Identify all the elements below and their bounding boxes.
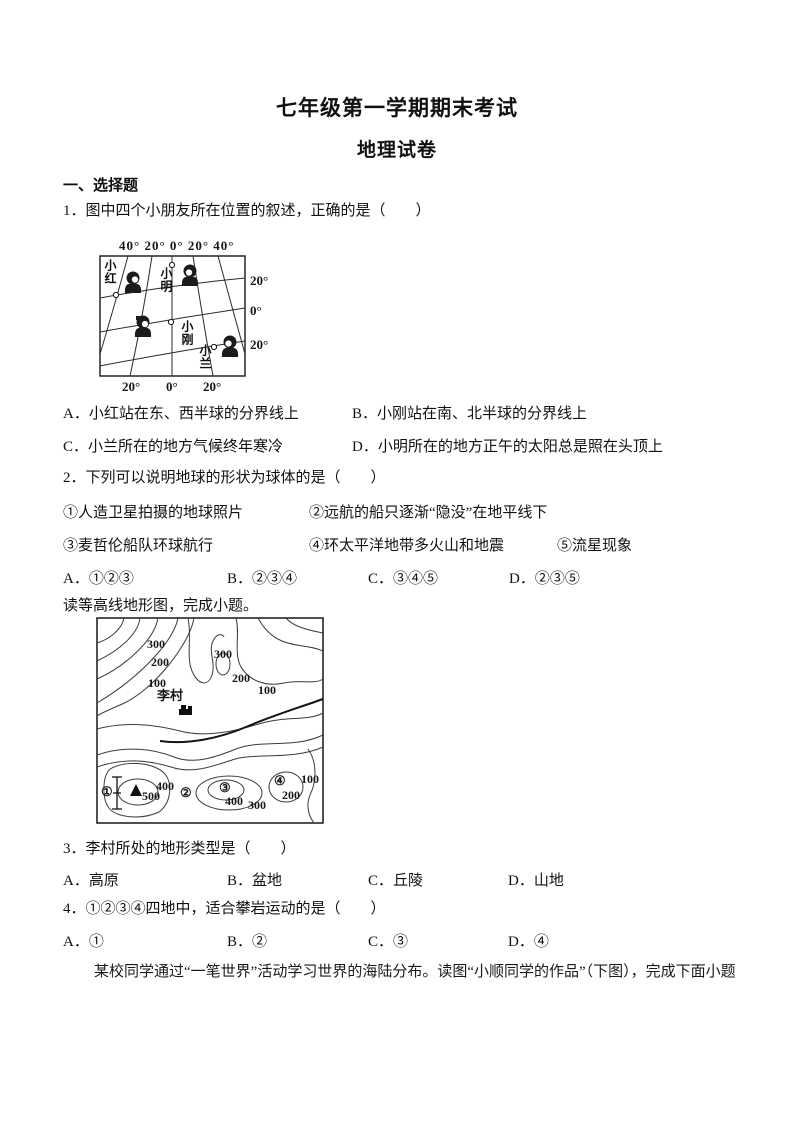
fig1-right-label-20n: 20° [250,273,268,289]
elevation-400-left-label: 400 [156,779,174,794]
lat-long-map-figure: 40° 20° 0° 20° 40° 20° 0° 20° 20° 0° 20°… [95,236,275,394]
contour-label-300-left: 300 [147,637,165,652]
fig1-bottom-label-20e: 20° [203,379,221,395]
site-1-label: ① [101,784,113,800]
child-figure-xiaohong [125,272,141,294]
section-heading: 一、选择题 [63,176,138,196]
question-4-option-c: C．③ [368,930,408,951]
question-3-option-b: B．盆地 [227,869,282,890]
question-1-option-b: B．小刚站在南、北半球的分界线上 [352,402,587,423]
fig1-name-xiaohong: 小红 [102,259,119,285]
site-4-label: ④ [274,773,286,789]
next-section-lead-in: 某校同学通过“一笔世界”活动学习世界的海陆分布。读图“小顺同学的作品”（下图），… [63,956,739,989]
lat-long-map-svg [95,236,275,394]
question-2-stem: 2．下列可以说明地球的形状为球体的是（ ） [63,468,386,488]
contour-label-100-right: 100 [258,683,276,698]
contour-map-lead-in: 读等高线地形图，完成小题。 [63,596,258,616]
child-figure-xiaolan [222,336,238,358]
question-2-option-b: B．②③④ [227,567,297,588]
peak-icon [130,784,142,796]
question-2-item-1: ①人造卫星拍摄的地球照片 [63,501,243,522]
question-3-option-a: A．高原 [63,869,119,890]
child-figure-xiaogang [135,316,151,338]
question-2-option-c: C．③④⑤ [368,567,438,588]
fig1-name-xiaoming: 小明 [158,267,175,293]
fig1-name-xiaolan: 小兰 [197,344,214,370]
question-2-option-d: D．②③⑤ [509,567,580,588]
fig1-bottom-label-20w: 20° [122,379,140,395]
fig1-bottom-label-0: 0° [166,379,178,395]
fig1-top-axis-labels: 40° 20° 0° 20° 40° [119,238,235,254]
question-4-option-b: B．② [227,930,267,951]
question-4-option-a: A．① [63,930,104,951]
question-1-option-a: A．小红站在东、西半球的分界线上 [63,402,299,423]
question-3-stem: 3．李村所处的地形类型是（ ） [63,839,296,859]
cliff-icon [112,777,122,809]
question-1-option-c: C．小兰所在的地方气候终年寒冷 [63,435,283,456]
elevation-300-label: 300 [248,798,266,813]
site-2-label: ② [180,785,192,801]
question-1-stem: 1．图中四个小朋友所在位置的叙述，正确的是（ ） [63,201,431,221]
fig1-right-label-20s: 20° [250,337,268,353]
question-4-stem: 4．①②③④四地中，适合攀岩运动的是（ ） [63,899,386,919]
question-2-option-a: A．①②③ [63,567,134,588]
elevation-400-mid-label: 400 [225,794,243,809]
contour-map-figure: 300 200 100 300 200 100 李村 ① 500 400 ② ③… [96,617,324,824]
elevation-200-label: 200 [282,788,300,803]
exam-paper-page: 七年级第一学期期末考试 地理试卷 一、选择题 1．图中四个小朋友所在位置的叙述，… [0,0,794,1123]
question-2-item-4: ④环太平洋地带多火山和地震 [309,534,504,555]
exam-title: 七年级第一学期期末考试 [0,92,794,122]
fig1-right-label-0: 0° [250,303,262,319]
question-3-option-d: D．山地 [508,869,564,890]
contour-label-200-right: 200 [232,671,250,686]
village-building-icon [179,705,192,715]
exam-subtitle: 地理试卷 [0,135,794,162]
contour-label-300-right: 300 [214,647,232,662]
question-2-item-5: ⑤流星现象 [557,534,632,555]
fig1-name-xiaogang: 小刚 [179,320,196,346]
contour-label-200-left: 200 [151,655,169,670]
village-label: 李村 [157,685,183,704]
question-2-item-2: ②远航的船只逐渐“隐没”在地平线下 [309,501,547,522]
question-4-option-d: D．④ [508,930,549,951]
question-1-option-d: D．小明所在的地方正午的太阳总是照在头顶上 [352,435,663,456]
question-2-item-3: ③麦哲伦船队环球航行 [63,534,213,555]
elevation-100-label: 100 [301,772,319,787]
question-3-option-c: C．丘陵 [368,869,423,890]
